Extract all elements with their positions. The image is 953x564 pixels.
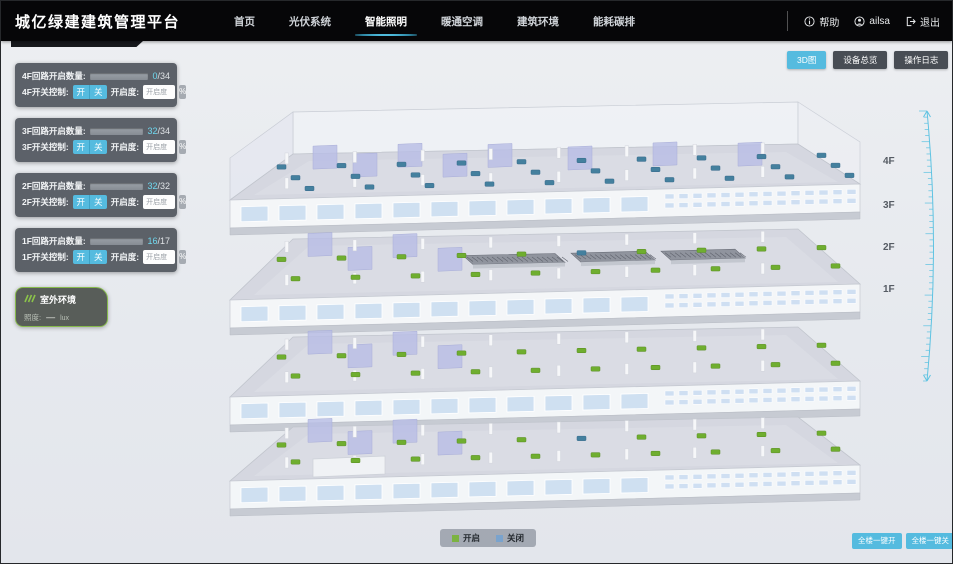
outdoor-env-title: 室外环境 [40,293,76,306]
floor-label-3f[interactable]: 3F [883,200,905,211]
floor-panel-1f: 1F回路开启数量: 16/17 1F开关控制: 开关 开启度: % [15,228,177,272]
legend-item-off: 关闭 [496,532,524,544]
switch-on-button[interactable]: 开 [73,250,90,264]
switch-off-button[interactable]: 关 [90,140,107,154]
info-icon [804,16,815,27]
circuit-count-label: 1F回路开启数量: [22,235,86,247]
dimming-label: 开启度: [111,141,139,153]
help-button[interactable]: 帮助 [804,14,839,29]
app-window: 城亿绿建建筑管理平台 首页 光伏系统 智能照明 暖通空调 建筑环境 能耗碳排 帮… [0,0,953,564]
illuminance-label: 照度: [24,312,41,323]
floor-zoom-ruler[interactable] [907,105,949,389]
dimming-input[interactable] [143,85,175,99]
dimming-input[interactable] [143,140,175,154]
nav-item-home[interactable]: 首页 [230,8,259,35]
legend-on-swatch [452,535,459,542]
user-menu[interactable]: ailsa [854,16,890,27]
circuit-progress-bar [90,128,144,135]
dimming-label: 开启度: [111,251,139,263]
switch-control-label: 4F开关控制: [22,86,69,98]
header-actions: 帮助 ailsa 退出 [787,11,940,31]
percent-button[interactable]: % [179,140,186,154]
circuit-count-value: 0/34 [152,71,170,81]
nav-item-pv-system[interactable]: 光伏系统 [285,8,335,35]
logout-button[interactable]: 退出 [905,14,940,29]
all-floors-on-button[interactable]: 全楼一键开 [852,533,902,549]
status-legend: 开启 关闭 [440,529,536,547]
outdoor-env-icon [24,294,36,305]
building-3d-view[interactable] [213,99,893,519]
circuit-count-label: 3F回路开启数量: [22,125,86,137]
switch-control-label: 2F开关控制: [22,196,69,208]
all-floors-off-button[interactable]: 全楼一键关 [906,533,953,549]
switch-on-button[interactable]: 开 [73,85,90,99]
username: ailsa [869,16,890,27]
top-navbar: 城亿绿建建筑管理平台 首页 光伏系统 智能照明 暖通空调 建筑环境 能耗碳排 帮… [1,1,952,41]
circuit-count-label: 2F回路开启数量: [22,180,86,192]
floor-panel-3f: 3F回路开启数量: 32/34 3F开关控制: 开关 开启度: % [15,118,177,162]
operation-log-button[interactable]: 操作日志 [894,51,948,69]
nav-item-smart-lighting[interactable]: 智能照明 [361,8,411,35]
percent-button[interactable]: % [179,250,186,264]
switch-off-button[interactable]: 关 [90,85,107,99]
bulk-actions: 全楼一键开 全楼一键关 [852,533,953,549]
nav-item-hvac[interactable]: 暖通空调 [437,8,487,35]
percent-button[interactable]: % [179,85,186,99]
floor-label-2f[interactable]: 2F [883,242,905,253]
outdoor-env-panel: 室外环境 照度: — lux [15,287,108,327]
dimming-input[interactable] [143,195,175,209]
percent-button[interactable]: % [179,195,186,209]
floor-label-4f[interactable]: 4F [883,156,905,167]
floor-panel-2f: 2F回路开启数量: 32/32 2F开关控制: 开关 开启度: % [15,173,177,217]
dimming-input[interactable] [143,250,175,264]
switch-on-button[interactable]: 开 [73,140,90,154]
device-overview-button[interactable]: 设备总览 [833,51,887,69]
circuit-count-value: 32/34 [147,126,170,136]
floor-panel-4f: 4F回路开启数量: 0/34 4F开关控制: 开关 开启度: % [15,63,177,107]
view-toolbar: 3D图 设备总览 操作日志 [787,51,948,69]
circuit-progress-bar [90,73,149,80]
switch-control-label: 1F开关控制: [22,251,69,263]
legend-item-on: 开启 [452,532,480,544]
nav-item-building-env[interactable]: 建筑环境 [513,8,563,35]
illuminance-unit: lux [60,315,69,322]
circuit-progress-bar [90,238,144,245]
navbar-tail-decoration [11,41,143,47]
nav-item-energy-carbon[interactable]: 能耗碳排 [589,8,639,35]
dimming-label: 开启度: [111,196,139,208]
switch-control-label: 3F开关控制: [22,141,69,153]
circuit-progress-bar [90,183,144,190]
circuit-count-label: 4F回路开启数量: [22,70,86,82]
user-icon [854,16,865,27]
legend-off-swatch [496,535,503,542]
main-nav: 首页 光伏系统 智能照明 暖通空调 建筑环境 能耗碳排 [230,8,639,35]
dimming-label: 开启度: [111,86,139,98]
switch-off-button[interactable]: 关 [90,250,107,264]
logout-icon [905,16,916,27]
switch-off-button[interactable]: 关 [90,195,107,209]
illuminance-value: — [46,312,55,322]
view-3d-button[interactable]: 3D图 [787,51,826,69]
circuit-count-value: 32/32 [147,181,170,191]
switch-on-button[interactable]: 开 [73,195,90,209]
circuit-count-value: 16/17 [147,236,170,246]
floor-label-1f[interactable]: 1F [883,284,905,295]
app-title: 城亿绿建建筑管理平台 [15,11,180,32]
